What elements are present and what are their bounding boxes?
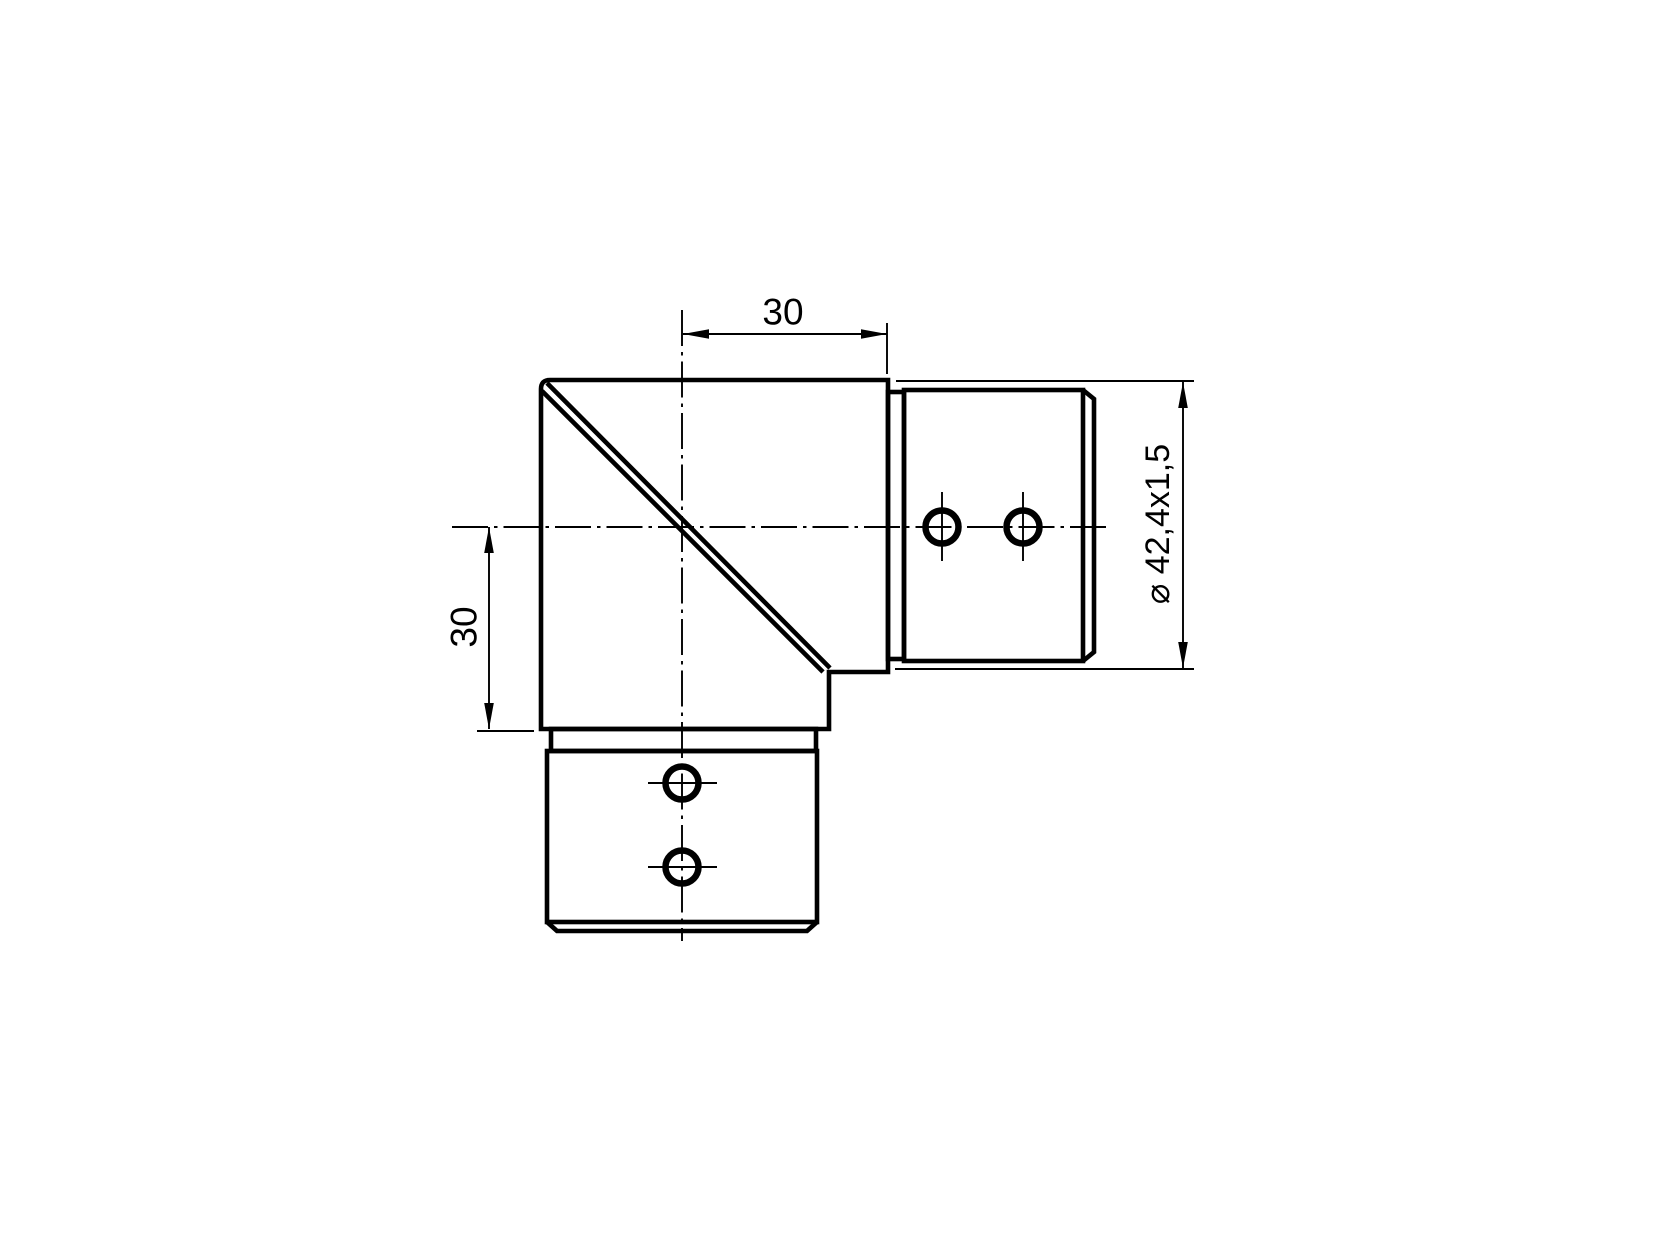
elbow-fitting-technical-drawing: 30 30 ⌀ 42,4x1,5 <box>0 0 1680 1260</box>
right-arm-cylinder <box>904 390 1083 661</box>
dim-diameter-label: ⌀ 42,4x1,5 <box>1139 444 1177 604</box>
drawing-canvas: 30 30 ⌀ 42,4x1,5 <box>0 0 1680 1260</box>
dim-left-arrow-up <box>484 527 494 553</box>
right-arm-neck <box>888 392 904 659</box>
dim-top-arrow-right <box>861 329 887 339</box>
dim-top-label: 30 <box>762 292 803 333</box>
dim-diameter-arrow-down <box>1178 642 1188 668</box>
bottom-arm-neck <box>551 729 816 751</box>
dim-diameter-arrow-up <box>1178 382 1188 408</box>
dim-top-arrow-left <box>683 329 709 339</box>
dim-left-label: 30 <box>444 606 485 647</box>
miter-seam-line-outer <box>547 383 830 668</box>
dim-left-arrow-down <box>484 703 494 729</box>
